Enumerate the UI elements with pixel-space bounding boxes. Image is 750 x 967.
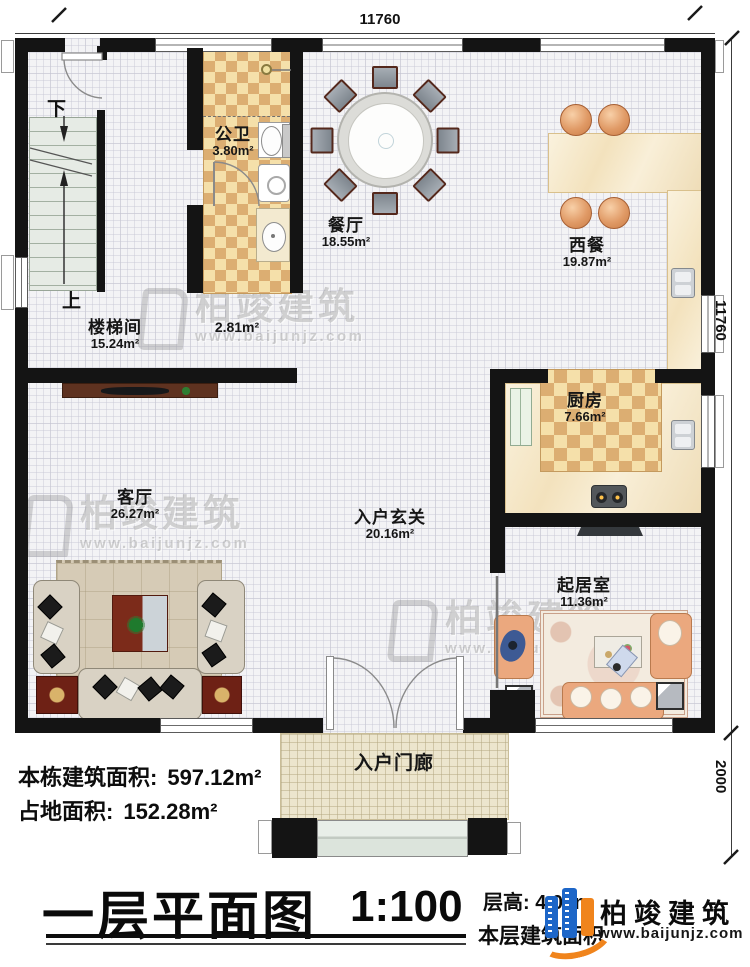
stair-arrowhead (60, 126, 68, 142)
dimension-tick (725, 31, 739, 45)
floor-plan-page: { "dimensions": { "top": "11760", "right… (0, 0, 750, 959)
building-area-label: 本栋建筑面积: (18, 765, 157, 790)
dimension-tick (52, 8, 66, 22)
land-area-value: 152.28m² (123, 799, 217, 824)
building-area-value: 597.12m² (167, 765, 261, 790)
drawing-scale: 1:100 (350, 882, 463, 932)
door-swing-arc (64, 60, 102, 98)
stair-arrowhead (60, 170, 68, 186)
door-swing-arc (396, 658, 456, 728)
door-swing-arc (214, 162, 259, 206)
dimension-tick (688, 6, 702, 20)
stair-break-line (30, 148, 92, 164)
door-leaf (62, 53, 102, 60)
door-swing-arc (334, 658, 394, 728)
land-area-label: 占地面积: (18, 799, 113, 824)
stair-break-line (30, 160, 92, 176)
company-logo-url: www.baijunjz.com (598, 925, 743, 942)
company-logo-icon (543, 886, 599, 948)
land-area-line: 占地面积:152.28m² (18, 794, 218, 826)
title-underline (46, 934, 466, 938)
dimension-tick (724, 726, 738, 740)
dimension-tick (724, 850, 738, 864)
title-underline-thin (46, 943, 466, 945)
building-area-line: 本栋建筑面积:597.12m² (18, 760, 262, 792)
